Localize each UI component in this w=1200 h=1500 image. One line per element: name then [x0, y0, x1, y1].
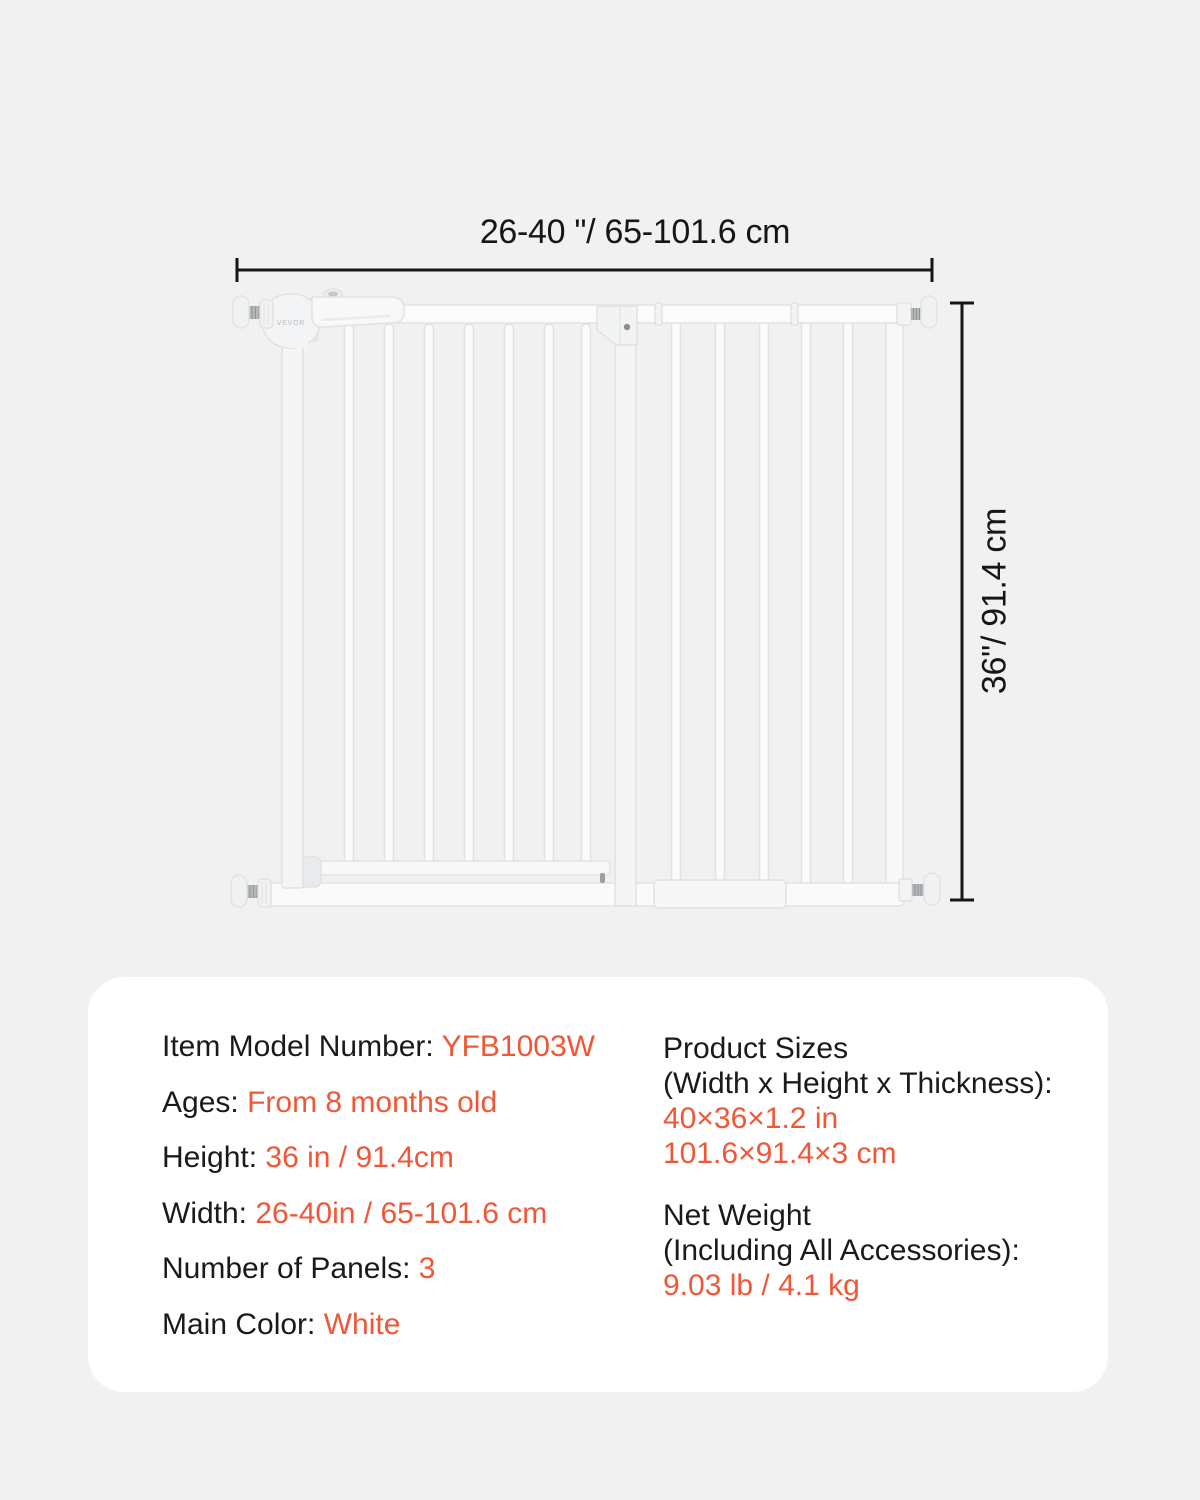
spec-row-height: Height: 36 in / 91.4cm — [162, 1140, 454, 1176]
spec-block-value: 101.6×91.4×3 cm — [663, 1136, 1053, 1171]
spec-block-title: Net Weight — [663, 1198, 1020, 1233]
baby-gate-illustration: VEVOR — [231, 289, 940, 908]
width-dimension-label: 26-40 "/ 65-101.6 cm — [480, 213, 790, 252]
gate-right-stile — [886, 316, 903, 886]
spec-value: From 8 months old — [247, 1086, 497, 1119]
pressure-knob-top-right — [897, 296, 937, 328]
gate-hinge-post — [597, 306, 637, 906]
spec-row-color: Main Color: White — [162, 1307, 400, 1343]
spec-row-width: Width: 26-40in / 65-101.6 cm — [162, 1196, 547, 1232]
brand-logo-text: VEVOR — [277, 320, 306, 327]
spec-block-title: (Width x Height x Thickness): — [663, 1066, 1053, 1101]
spec-value: 36 in / 91.4cm — [265, 1141, 453, 1174]
pressure-knob-bottom-right — [899, 873, 940, 905]
spec-label: Width: — [162, 1197, 255, 1230]
pressure-knob-bottom-left — [231, 875, 271, 907]
spec-row-model: Item Model Number: YFB1003W — [162, 1029, 595, 1065]
gate-left-post — [282, 336, 303, 888]
width-dimension-line — [237, 258, 932, 282]
gate-extension-bars — [672, 318, 853, 885]
spec-label: Item Model Number: — [162, 1030, 442, 1063]
spec-row-panels: Number of Panels: 3 — [162, 1251, 435, 1287]
gate-door-bars — [345, 324, 591, 866]
baby-gate-diagram: VEVOR — [0, 0, 1200, 980]
spec-block-net-weight: Net Weight (Including All Accessories): … — [663, 1198, 1020, 1303]
spec-label: Main Color: — [162, 1308, 324, 1341]
infographic-stage: VEVOR — [0, 0, 1200, 1500]
height-dimension-label: 36"/ 91.4 cm — [976, 508, 1015, 694]
spec-block-value: 40×36×1.2 in — [663, 1101, 1053, 1136]
spec-value: White — [324, 1308, 401, 1341]
spec-block-product-sizes: Product Sizes (Width x Height x Thicknes… — [663, 1031, 1053, 1171]
height-dimension-line — [950, 303, 974, 900]
spec-value: YFB1003W — [442, 1030, 595, 1063]
spec-label: Number of Panels: — [162, 1252, 419, 1285]
spec-row-ages: Ages: From 8 months old — [162, 1085, 497, 1121]
gate-bottom-rail — [266, 880, 904, 908]
spec-block-title: Product Sizes — [663, 1031, 1053, 1066]
spec-block-value: 9.03 lb / 4.1 kg — [663, 1268, 1020, 1303]
gate-latch-handle — [312, 289, 404, 327]
spec-label: Height: — [162, 1141, 265, 1174]
spec-value: 3 — [419, 1252, 436, 1285]
spec-label: Ages: — [162, 1086, 247, 1119]
spec-card: Item Model Number: YFB1003W Ages: From 8… — [88, 977, 1108, 1392]
pressure-knob-top-left — [233, 296, 273, 328]
spec-block-title: (Including All Accessories): — [663, 1233, 1020, 1268]
spec-value: 26-40in / 65-101.6 cm — [255, 1197, 547, 1230]
